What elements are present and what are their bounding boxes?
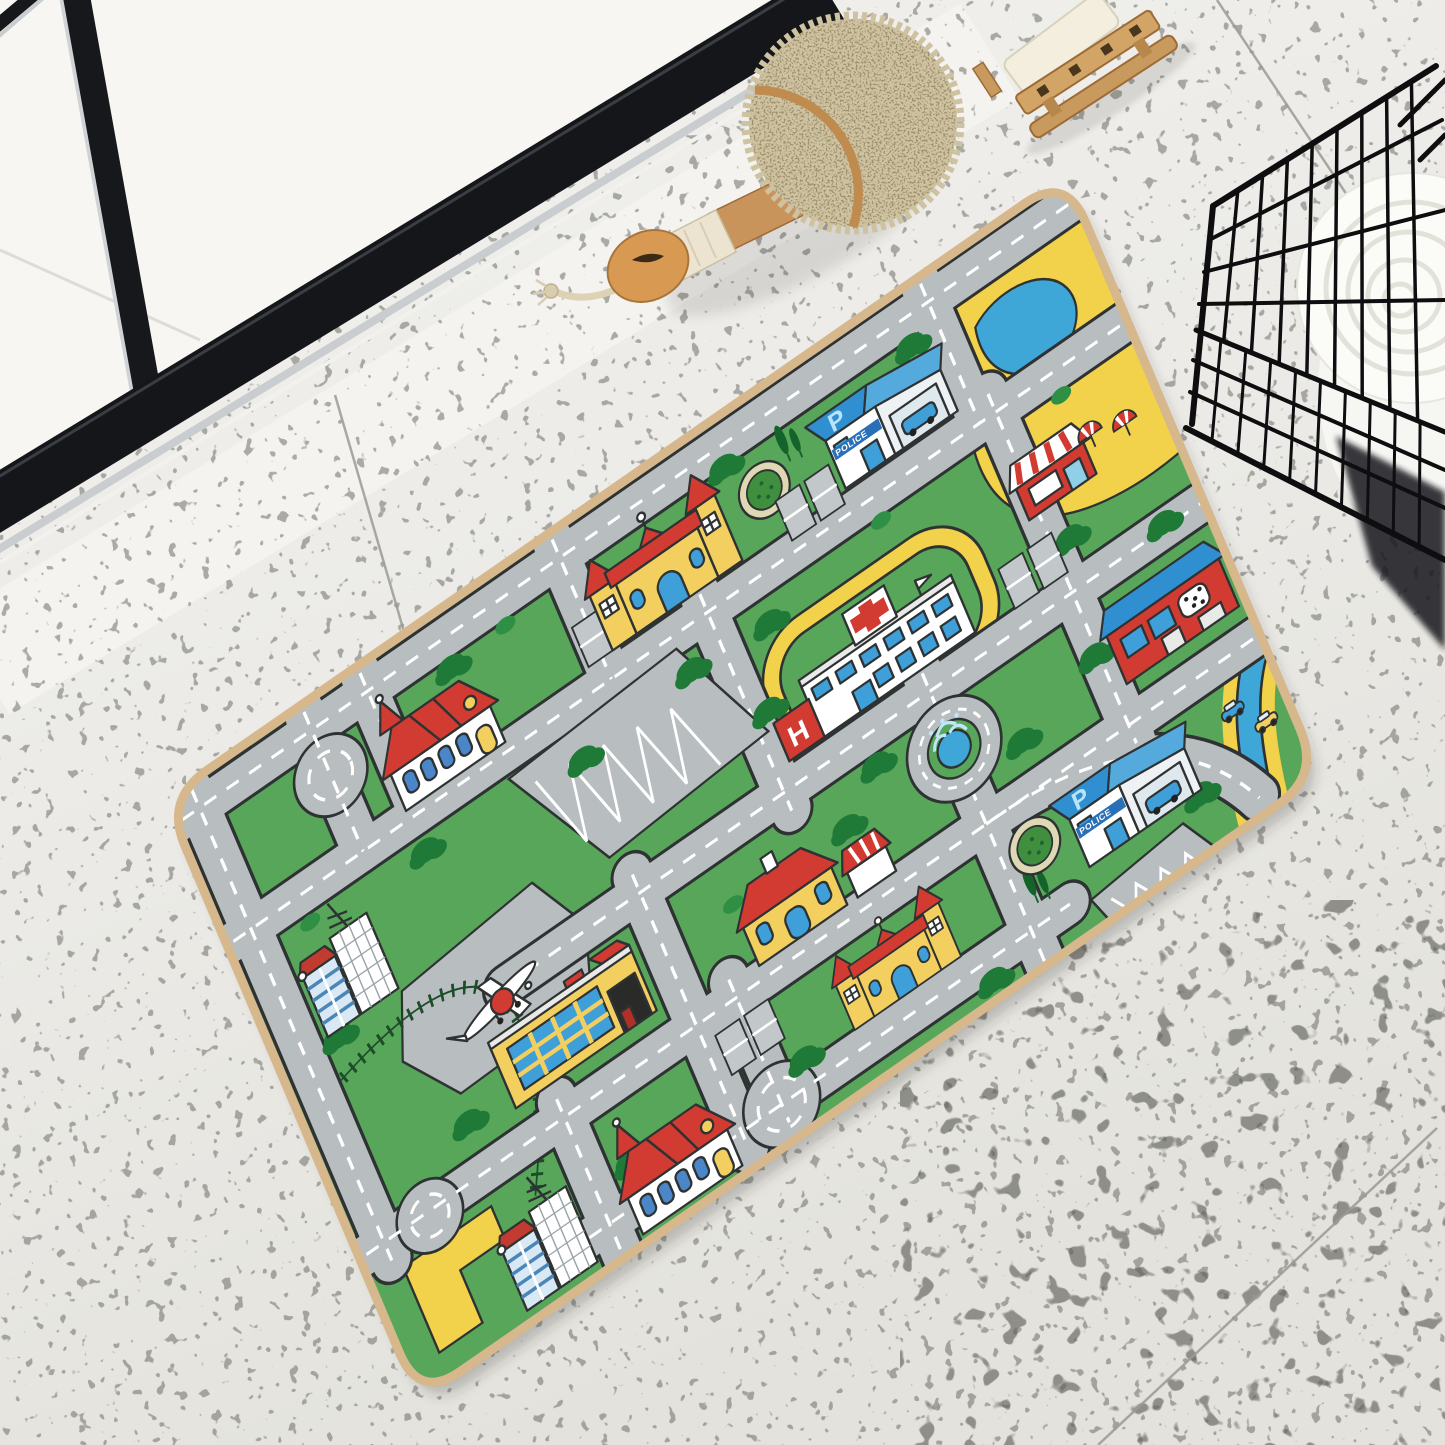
photo-scene: P POLICE H P POLICE — [0, 0, 1445, 1445]
rope-knot — [544, 284, 558, 298]
